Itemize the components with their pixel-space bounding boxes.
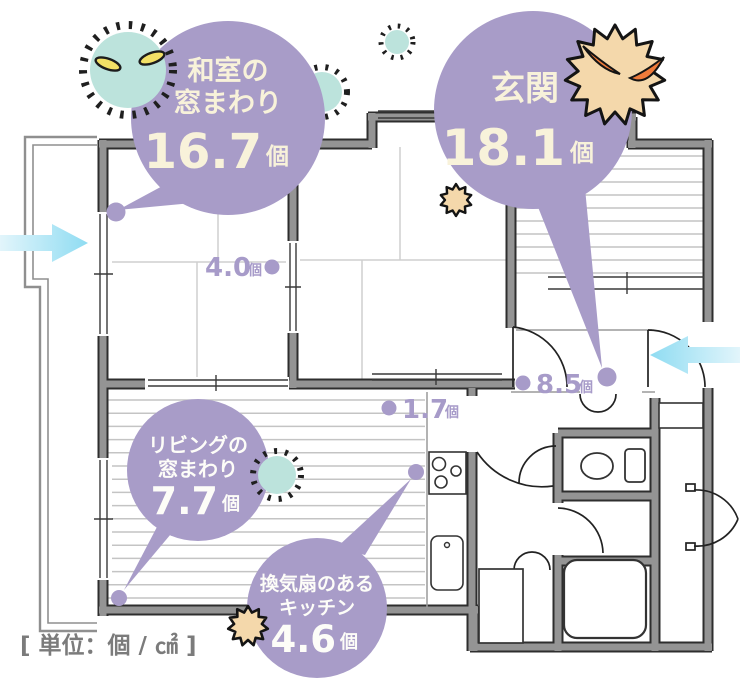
toilet-tank bbox=[625, 449, 645, 482]
bubble-kitchen-value: 4.6 bbox=[270, 618, 336, 661]
toilet bbox=[581, 453, 613, 479]
bubble-living-label-2: 窓まわり bbox=[158, 457, 238, 481]
leader-dot-washitsu bbox=[107, 203, 126, 222]
unit-note: [ 単位：個 / ㎠ ] bbox=[20, 632, 196, 659]
bubble-genkan-unit: 個 bbox=[569, 139, 594, 167]
airflow-arrow-right-icon bbox=[650, 336, 740, 374]
bubble-kitchen-unit: 個 bbox=[339, 632, 358, 653]
spot-dot bbox=[516, 376, 531, 391]
doors bbox=[477, 327, 738, 570]
leader-dot-kitchen bbox=[408, 464, 424, 480]
balcony-outline bbox=[25, 137, 97, 631]
floor-plan bbox=[25, 107, 738, 651]
bathtub bbox=[564, 560, 646, 638]
bubble-washitsu-unit: 個 bbox=[265, 144, 289, 170]
bubble-kitchen-label-2: キッチン bbox=[279, 597, 355, 619]
floorplan-canvas: 和室の 窓まわり 16.7 個 玄関 18.1 個 リビングの 窓まわり 7.7… bbox=[0, 0, 740, 678]
bubble-washitsu-label-2: 窓まわり bbox=[174, 87, 282, 119]
bubble-kitchen-label-1: 換気扇のある bbox=[260, 572, 374, 595]
spot-unit: 個 bbox=[247, 262, 262, 279]
spot-label-between-tatami-rooms: 4.0 個 bbox=[205, 253, 280, 283]
spot-unit: 個 bbox=[578, 379, 593, 396]
spot-value: 1.7 bbox=[402, 395, 448, 425]
closet-top-right bbox=[659, 403, 703, 428]
spot-dot bbox=[382, 401, 397, 416]
leader-dot-genkan bbox=[598, 368, 617, 387]
spot-label-hallway-right: 8.5 個 bbox=[516, 370, 594, 400]
spot-value: 8.5 bbox=[536, 370, 582, 400]
bubble-genkan-value: 18.1 bbox=[442, 119, 565, 177]
bubble-living-window: リビングの 窓まわり 7.7 個 bbox=[111, 399, 269, 606]
bubble-living-unit: 個 bbox=[221, 494, 240, 515]
mold-count-floorplan: 和室の 窓まわり 16.7 個 玄関 18.1 個 リビングの 窓まわり 7.7… bbox=[0, 0, 740, 678]
bubble-living-value: 7.7 bbox=[151, 479, 218, 523]
spot-unit: 個 bbox=[444, 404, 459, 421]
teal-germ-tiny-icon bbox=[381, 26, 413, 58]
spot-dot bbox=[265, 260, 280, 275]
tan-spiky-germ-entrance-icon bbox=[441, 184, 471, 216]
airflow-arrow-left-icon bbox=[0, 224, 88, 262]
bubble-living-label-1: リビングの bbox=[148, 433, 248, 457]
spot-value: 4.0 bbox=[205, 253, 251, 283]
washing-machine bbox=[479, 569, 523, 643]
leader-dot-living bbox=[111, 590, 127, 606]
bubble-genkan-label: 玄関 bbox=[491, 69, 559, 109]
bubble-washitsu-value: 16.7 bbox=[144, 124, 262, 180]
bubble-washitsu-label-1: 和室の bbox=[188, 55, 269, 87]
